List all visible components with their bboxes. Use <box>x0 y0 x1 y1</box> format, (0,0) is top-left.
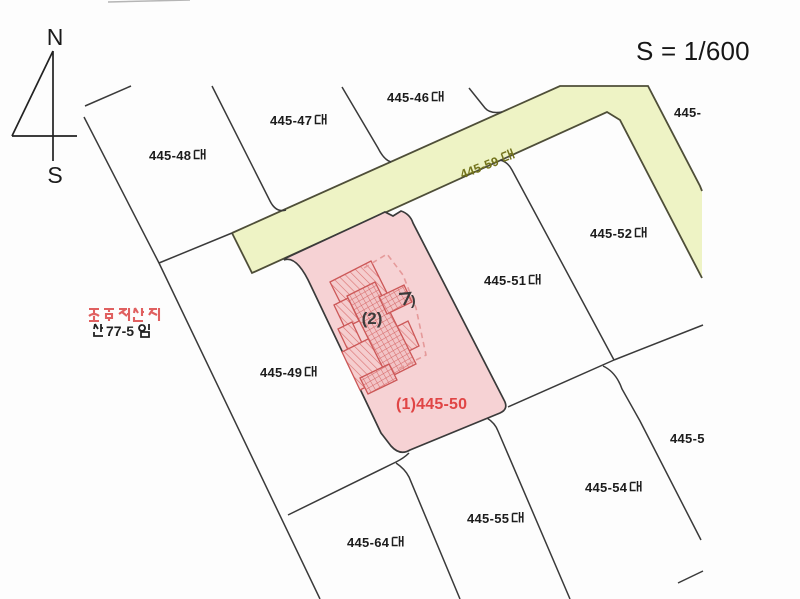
svg-text:): ) <box>411 292 416 308</box>
svg-text:445-47: 445-47 <box>270 113 312 128</box>
svg-text:445-5: 445-5 <box>670 431 705 446</box>
svg-text:S: S <box>47 162 62 188</box>
svg-text:(1)445-50: (1)445-50 <box>396 396 467 413</box>
svg-text:445-49: 445-49 <box>260 365 302 380</box>
svg-text:(2): (2) <box>362 309 383 328</box>
svg-text:77-5: 77-5 <box>106 323 134 339</box>
svg-text:445-: 445- <box>674 105 701 120</box>
svg-text:N: N <box>47 24 64 50</box>
svg-text:445-54: 445-54 <box>585 480 628 495</box>
svg-text:445-51: 445-51 <box>484 273 526 288</box>
svg-text:445-52: 445-52 <box>590 226 632 241</box>
svg-text:445-48: 445-48 <box>149 148 191 163</box>
svg-text:445-46: 445-46 <box>387 90 429 105</box>
svg-text:445-55: 445-55 <box>467 511 509 526</box>
svg-text:S = 1/600: S = 1/600 <box>636 36 750 66</box>
svg-text:445-64: 445-64 <box>347 535 390 550</box>
